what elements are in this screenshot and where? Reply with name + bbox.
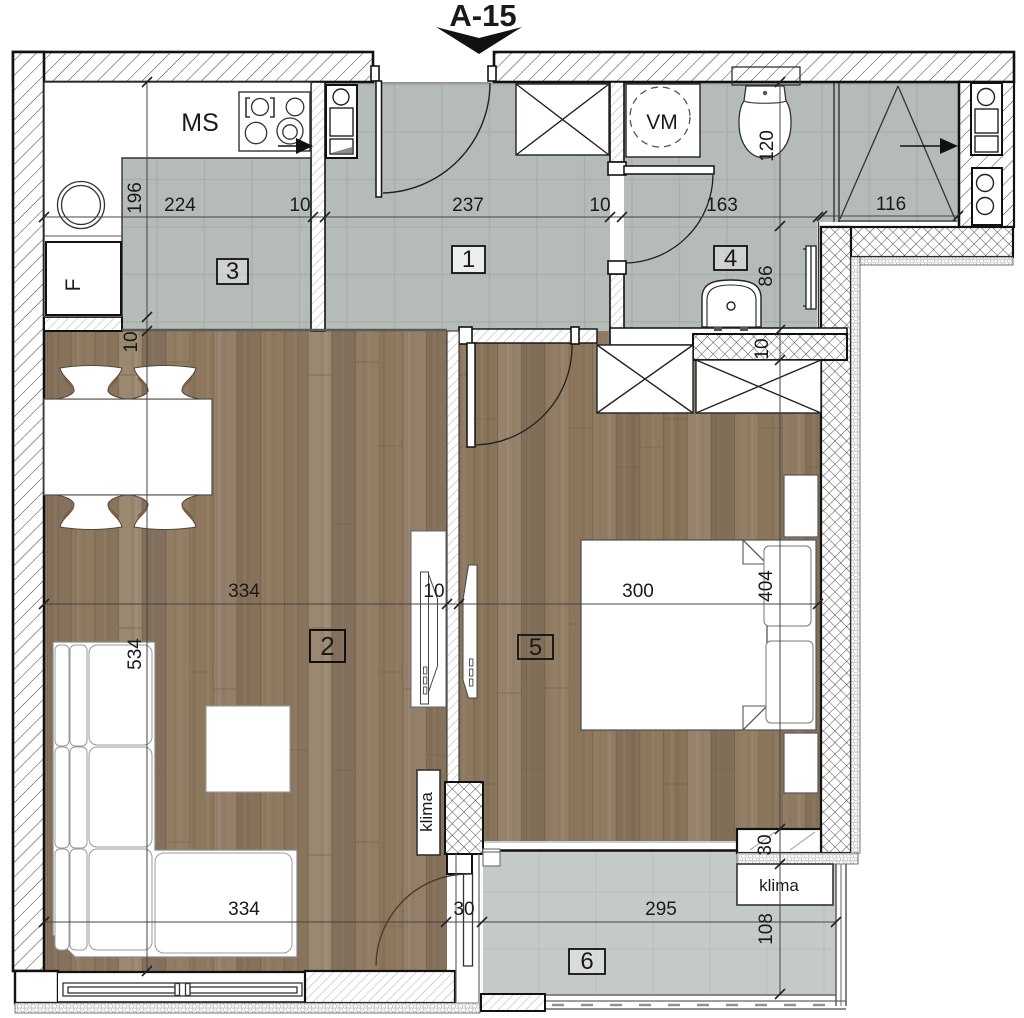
svg-text:10: 10 (423, 581, 444, 602)
svg-text:300: 300 (622, 581, 654, 602)
svg-text:10: 10 (121, 331, 142, 352)
svg-text:klima: klima (759, 876, 799, 895)
svg-text:30: 30 (453, 899, 474, 920)
svg-text:klima: klima (417, 792, 436, 832)
svg-text:10: 10 (289, 195, 310, 216)
svg-text:6: 6 (580, 948, 593, 975)
svg-text:MS: MS (181, 109, 219, 137)
svg-text:295: 295 (645, 899, 677, 920)
svg-text:108: 108 (756, 913, 777, 945)
svg-text:4: 4 (724, 245, 737, 272)
svg-text:334: 334 (228, 899, 260, 920)
svg-text:534: 534 (125, 638, 146, 670)
svg-text:196: 196 (125, 182, 146, 214)
svg-text:116: 116 (876, 194, 906, 215)
svg-text:A-15: A-15 (449, 0, 516, 33)
svg-text:10: 10 (752, 338, 773, 359)
svg-text:404: 404 (756, 570, 777, 602)
svg-text:224: 224 (164, 195, 196, 216)
svg-text:334: 334 (228, 581, 260, 602)
svg-text:VM: VM (646, 111, 678, 134)
svg-text:10: 10 (589, 195, 610, 216)
svg-text:1: 1 (462, 246, 475, 273)
svg-text:3: 3 (226, 258, 239, 285)
svg-text:2: 2 (320, 631, 334, 661)
svg-text:86: 86 (756, 265, 777, 286)
svg-text:237: 237 (452, 195, 484, 216)
svg-text:30: 30 (755, 834, 776, 855)
svg-text:120: 120 (757, 130, 778, 162)
svg-text:F: F (62, 279, 85, 292)
svg-text:163: 163 (706, 195, 738, 216)
svg-text:5: 5 (529, 634, 542, 661)
